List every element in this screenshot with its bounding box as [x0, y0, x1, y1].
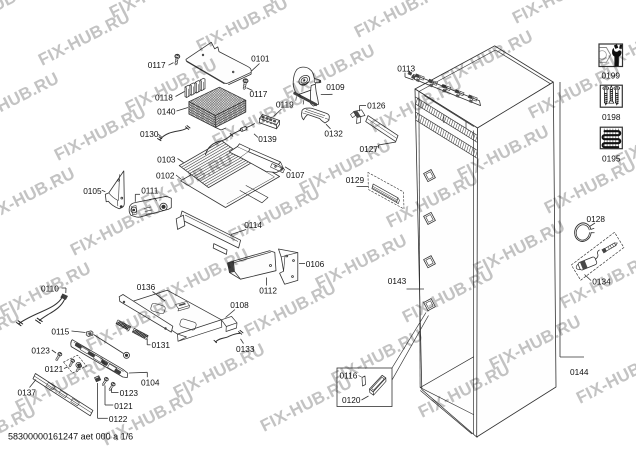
- svg-text:0143: 0143: [388, 276, 407, 286]
- svg-text:0130: 0130: [140, 129, 159, 139]
- svg-text:0123: 0123: [120, 388, 139, 398]
- svg-text:0108: 0108: [230, 300, 249, 310]
- svg-text:0113: 0113: [397, 63, 415, 73]
- svg-text:0103: 0103: [157, 154, 176, 164]
- svg-text:0198: 0198: [602, 112, 621, 122]
- svg-text:0106: 0106: [306, 259, 325, 269]
- svg-text:0115: 0115: [51, 326, 69, 336]
- svg-text:0121: 0121: [114, 401, 133, 411]
- svg-text:0132: 0132: [324, 129, 343, 139]
- svg-text:0126: 0126: [367, 101, 386, 111]
- svg-text:0101: 0101: [251, 54, 270, 64]
- svg-text:0109: 0109: [326, 82, 345, 92]
- svg-text:0144: 0144: [570, 367, 589, 377]
- svg-text:0120: 0120: [342, 395, 361, 405]
- svg-text:0117: 0117: [148, 60, 166, 70]
- svg-text:0123: 0123: [31, 345, 50, 355]
- svg-text:0105: 0105: [83, 186, 102, 196]
- svg-text:0140: 0140: [157, 107, 176, 117]
- svg-text:0112: 0112: [259, 285, 277, 295]
- svg-text:0104: 0104: [141, 378, 160, 388]
- svg-text:0128: 0128: [587, 214, 606, 224]
- svg-text:0131: 0131: [152, 340, 171, 350]
- svg-text:0121: 0121: [45, 364, 64, 374]
- svg-text:0139: 0139: [258, 134, 277, 144]
- svg-text:0129: 0129: [346, 175, 365, 185]
- svg-text:0136: 0136: [137, 282, 156, 292]
